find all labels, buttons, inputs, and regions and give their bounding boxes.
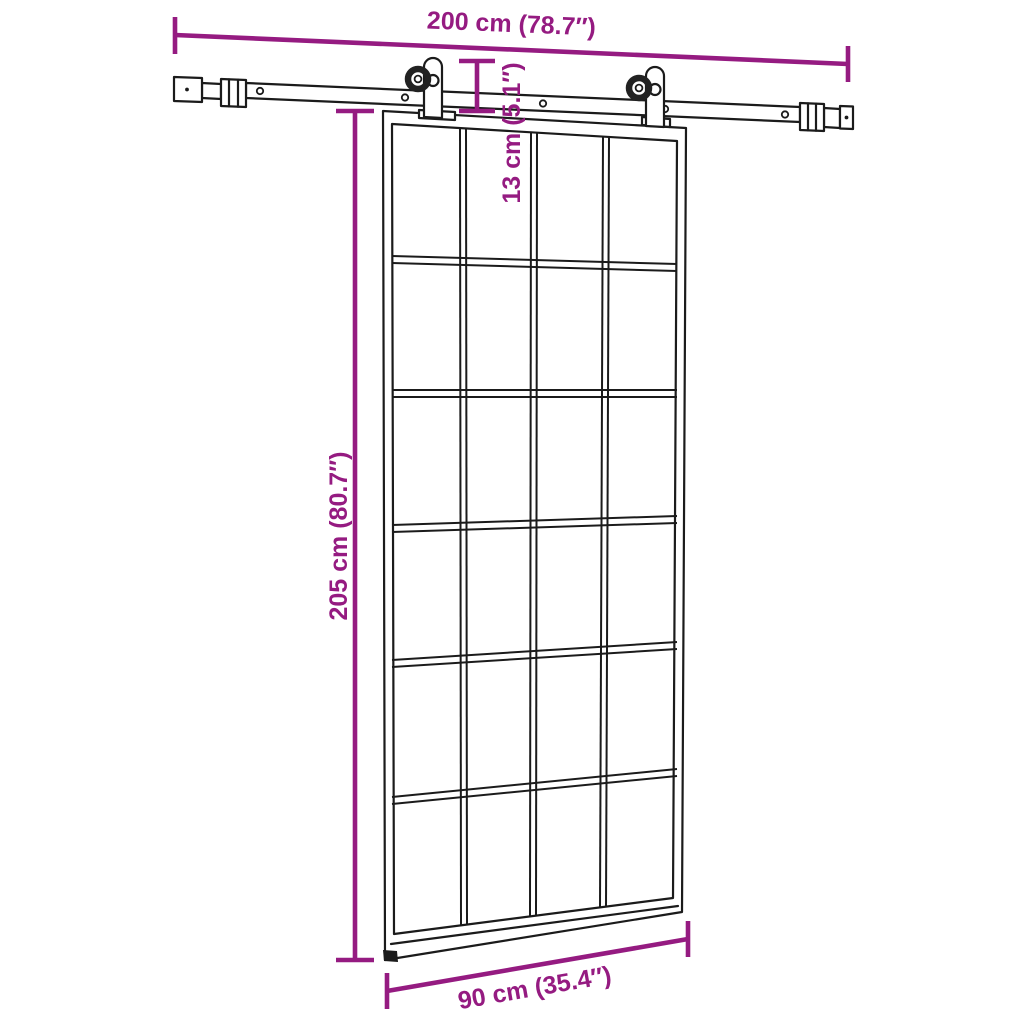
door-floor-guide (383, 950, 398, 962)
right-roller-hub (636, 85, 643, 92)
left-roller-hub (415, 76, 422, 83)
dimension-diagram: 200 cm (78.7″) 13 cm (5.1″) 205 cm (80.7… (0, 0, 1024, 1024)
door-height-label: 205 cm (80.7″) (325, 451, 353, 620)
left-end-stop (174, 77, 246, 107)
hanger-height-label: 13 cm (5.1″) (498, 62, 526, 203)
door-inner-frame (392, 124, 677, 934)
right-end-stop (800, 103, 853, 131)
door-width-label: 90 cm (35.4″) (456, 961, 614, 1015)
door-panel (383, 111, 686, 962)
left-roller-hanger (408, 58, 455, 120)
right-roller-hanger (629, 67, 670, 127)
track-length-label: 200 cm (78.7″) (426, 6, 596, 41)
dimension-door-height: 205 cm (80.7″) (325, 111, 374, 960)
